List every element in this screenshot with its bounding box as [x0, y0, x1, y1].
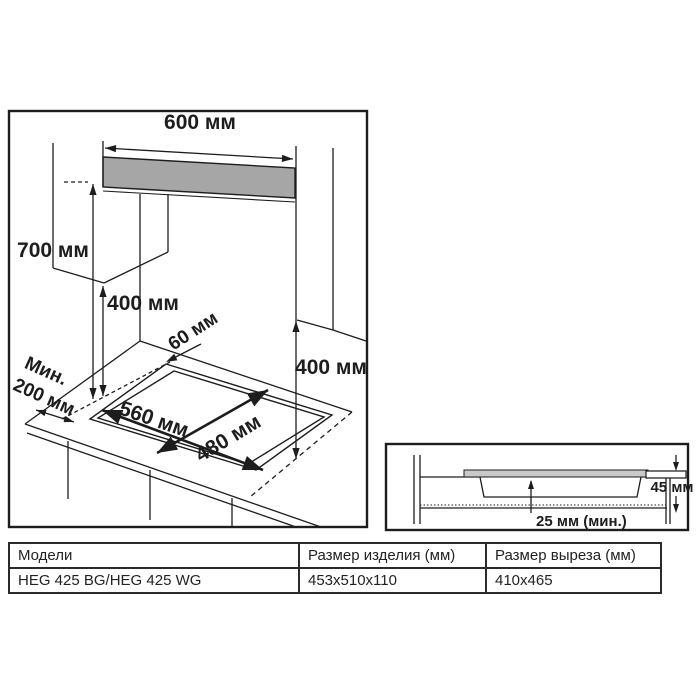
hood-slab — [103, 157, 295, 198]
header-cutout-size: Размер выреза (мм) — [486, 543, 661, 568]
header-models: Модели — [9, 543, 299, 568]
spec-table-header-row: Модели Размер изделия (мм) Размер выреза… — [9, 543, 661, 568]
arrow-45-bottom — [673, 504, 679, 513]
spec-table: Модели Размер изделия (мм) Размер выреза… — [8, 542, 662, 594]
label-cabinet-clearance: 400 мм — [107, 292, 179, 315]
arrow-700-down — [89, 388, 96, 399]
counter-front-edge — [25, 424, 321, 527]
label-hood-clearance: 700 мм — [17, 239, 89, 262]
arrow-400c-up — [99, 286, 106, 297]
dim-600-line — [105, 148, 293, 159]
label-hood-width: 600 мм — [164, 111, 236, 134]
arrow-600-right — [282, 155, 293, 162]
arrow-400c-down — [99, 385, 106, 396]
cell-product-size: 453x510x110 — [299, 568, 486, 593]
right-cabinet-bottom-front — [333, 330, 366, 341]
label-right-clearance: 400 мм — [295, 356, 367, 379]
edge-trim-flange — [646, 471, 686, 478]
hob-tub — [480, 477, 641, 497]
arrow-560-right — [242, 456, 263, 470]
spec-table-data-row: HEG 425 BG/HEG 425 WG 453x510x110 410x46… — [9, 568, 661, 593]
cell-model: HEG 425 BG/HEG 425 WG — [9, 568, 299, 593]
installation-diagram-page: 600 мм 700 мм 400 мм 400 мм Мин. 200 мм … — [0, 0, 700, 700]
left-cabinet-bottom-side — [104, 252, 168, 283]
counter-right-edge-hidden — [250, 412, 352, 497]
arrow-400r-down — [292, 448, 299, 459]
arrow-700-up — [89, 184, 96, 195]
arrow-400r-up — [292, 321, 299, 332]
header-product-size: Размер изделия (мм) — [299, 543, 486, 568]
right-cabinet-bottom-side — [297, 320, 333, 330]
diagram-canvas: 600 мм 700 мм 400 мм 400 мм Мин. 200 мм … — [0, 0, 700, 540]
left-cabinet-bottom-front — [53, 268, 104, 283]
arrow-45-top — [673, 462, 679, 471]
cell-cutout-size: 410x465 — [486, 568, 661, 593]
hob-glass — [464, 470, 648, 477]
label-edge-height: 45 мм — [650, 479, 693, 496]
label-bottom-clearance: 25 мм (мин.) — [536, 513, 627, 530]
main-diagram — [9, 111, 367, 527]
arrow-600-left — [105, 145, 116, 152]
arrowheads — [36, 145, 679, 513]
